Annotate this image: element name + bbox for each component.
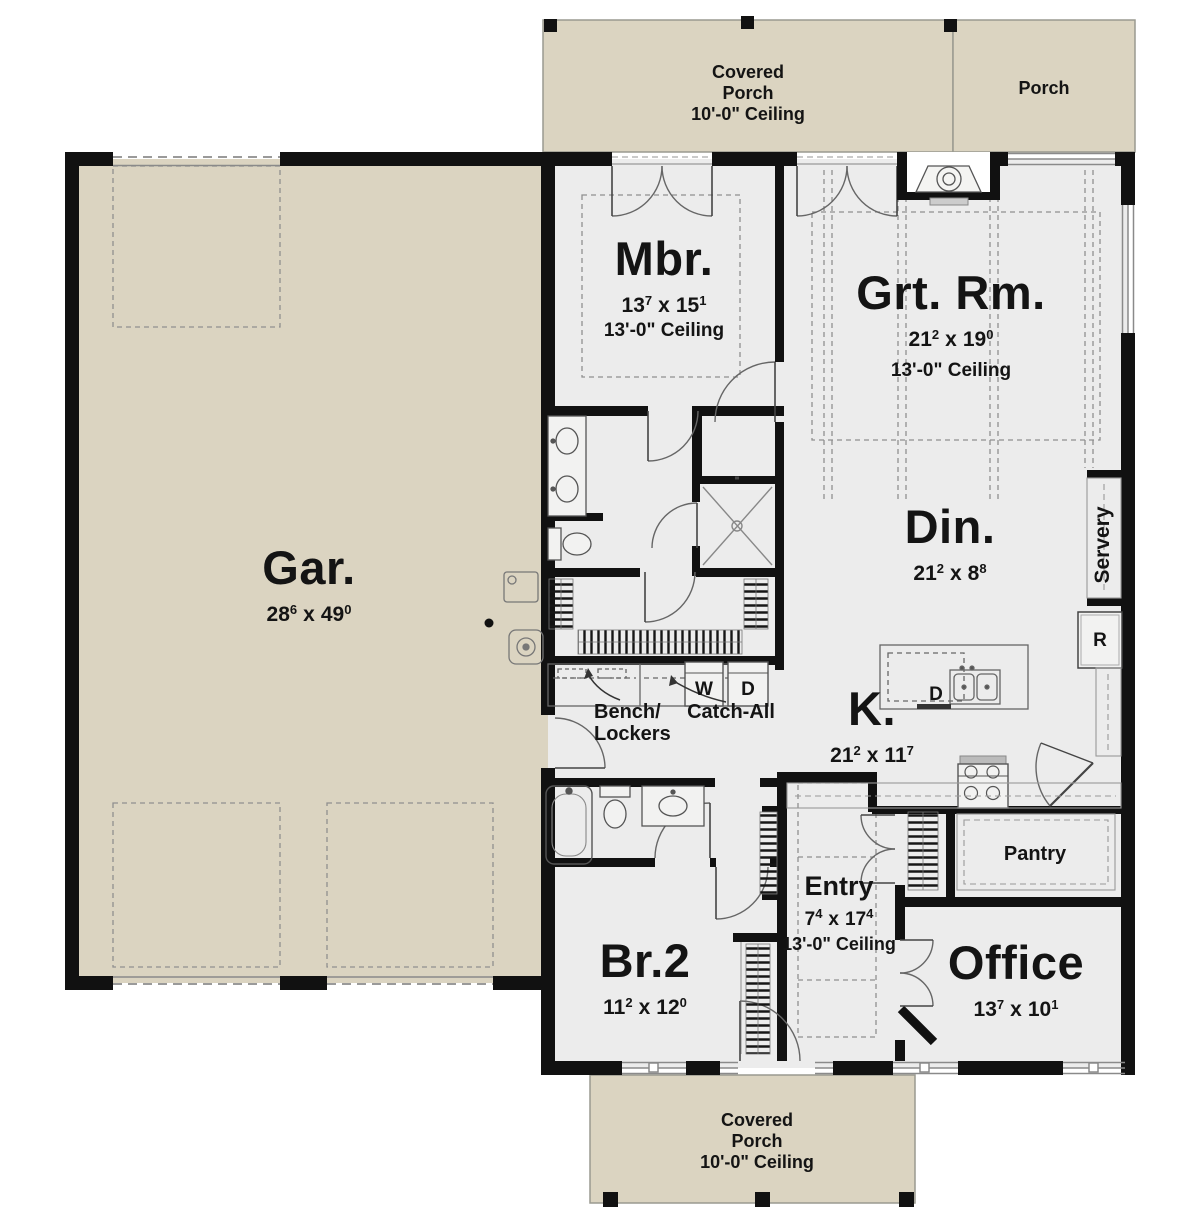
- room-label-din: Din. 212x88: [905, 502, 996, 587]
- room-label-entry: Entry 74x174 13'-0" Ceiling: [782, 872, 896, 956]
- room-label-mbr: Mbr. 137x151 13'-0" Ceiling: [604, 234, 724, 343]
- dryer-label: D: [741, 680, 755, 700]
- servery-label: Servery: [1091, 506, 1115, 583]
- island-dishwasher-label: D: [929, 685, 943, 705]
- covered-porch-top-label: Covered Porch 10'-0" Ceiling: [691, 62, 805, 125]
- room-label-grt-rm: Grt. Rm. 212x190 13'-0" Ceiling: [856, 268, 1045, 383]
- fridge-label: R: [1093, 631, 1107, 651]
- room-label-kitchen: K. 212x117: [830, 684, 914, 769]
- room-label-br2: Br.2 112x120: [600, 936, 691, 1021]
- bath2-vanity: [642, 786, 704, 826]
- master-vanity: [548, 416, 586, 516]
- hall-closet-rod: [760, 812, 777, 894]
- room-label-gar: Gar. 286x490: [262, 543, 355, 628]
- floor-plan-drawing: [0, 0, 1200, 1220]
- bench-lockers-label: Bench/ Lockers: [594, 701, 671, 745]
- washer-label: W: [695, 680, 713, 700]
- catch-all-label: Catch-All: [687, 701, 775, 723]
- porch-right-label: Porch: [1018, 78, 1069, 99]
- range: [958, 756, 1008, 808]
- fireplace: [897, 152, 1000, 205]
- pantry-label: Pantry: [1004, 843, 1066, 865]
- floor-drain: [485, 619, 494, 628]
- room-label-office: Office 137x101: [948, 938, 1084, 1023]
- covered-porch-bottom-label: Covered Porch 10'-0" Ceiling: [700, 1110, 814, 1173]
- floor-plan: Covered Porch 10'-0" Ceiling Porch Mbr. …: [0, 0, 1200, 1220]
